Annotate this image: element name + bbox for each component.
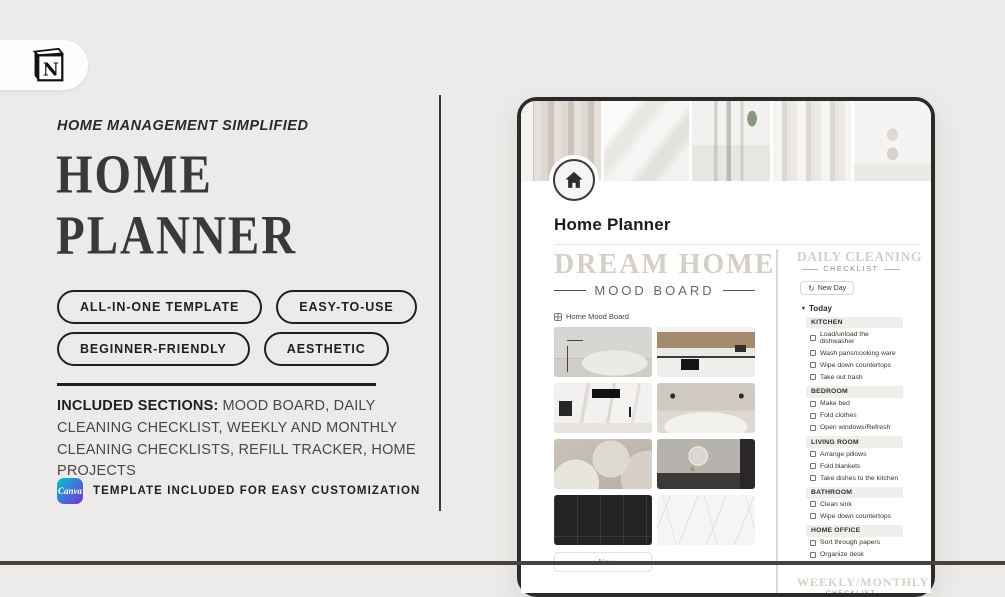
home-icon [563,169,585,191]
checkbox-empty-icon[interactable] [810,335,816,341]
checklist-section-home-office: HOME OFFICE [806,525,903,537]
checkbox-empty-icon[interactable] [810,513,816,519]
mood-board-heading: DREAM HOME [554,250,755,280]
checklist-item[interactable]: Take dishes to the kitchen [806,472,903,484]
checklist-item-label: Clean sink [820,501,852,508]
checklist-item[interactable]: Fold clothes [806,410,903,422]
notion-mockup-frame: Home Planner DREAM HOME MOOD BOARD Home … [517,97,935,597]
horizontal-divider [57,383,376,386]
checkbox-empty-icon[interactable] [810,552,816,558]
notion-page-title: Home Planner [554,215,671,235]
checklist-item-label: Fold clothes [820,412,857,419]
page-title-line2: PLANNER [56,205,297,266]
cover-photo-white-column [773,101,852,181]
checkbox-empty-icon[interactable] [810,362,816,368]
checklist-item-label: Wash pans/cooking ware [820,350,896,357]
notion-page-icon[interactable] [553,159,595,201]
checklist-item-label: Wipe down countertops [820,362,891,369]
canva-note: TEMPLATE INCLUDED FOR EASY CUSTOMIZATION [93,485,420,497]
canva-row: Canva TEMPLATE INCLUDED FOR EASY CUSTOMI… [57,478,420,504]
checklist-item-label: Load/unload the dishwasher [820,331,903,345]
weekly-checklist-subheading: CHECKLIST [797,590,905,593]
today-group-label: Today [809,304,832,313]
refresh-icon: ↻ [808,285,815,292]
mood-board-column: DREAM HOME MOOD BOARD Home Mood Board + … [554,250,755,572]
checklist-item[interactable]: Wipe down countertops [806,510,903,522]
mood-board-image-white-bedroom[interactable] [657,383,755,433]
checkbox-empty-icon[interactable] [810,540,816,546]
column-divider [776,249,778,593]
eyebrow-text: HOME MANAGEMENT SIMPLIFIED [57,118,308,134]
badge-beginner-friendly: BEGINNER-FRIENDLY [57,332,250,366]
mood-board-subheading: MOOD BOARD [554,283,755,298]
checklist-item-label: Open windows/Refresh [820,424,890,431]
checkbox-empty-icon[interactable] [810,451,816,457]
checklist-item[interactable]: Take out trash [806,371,903,383]
mood-board-image-black-wall-paneling[interactable] [554,495,652,545]
daily-checklist-column: DAILY CLEANING CHECKLIST ↻ New Day ▾ Tod… [797,249,905,593]
checklist-item-label: Fold blankets [820,463,860,470]
checklist-item[interactable]: Arrange pillows [806,448,903,460]
canva-logo-icon: Canva [57,478,83,504]
daily-checklist-heading: DAILY CLEANING [797,249,905,265]
checkbox-empty-icon[interactable] [810,350,816,356]
checklist-section-kitchen: KITCHEN [806,317,903,329]
checklist-section-living-room: LIVING ROOM [806,436,903,448]
checklist-item[interactable]: Load/unload the dishwasher [806,328,903,347]
checkbox-empty-icon[interactable] [810,425,816,431]
weekly-checklist-heading: WEEKLY/MONTHLY [797,575,905,590]
mood-board-image-kitchen-marble-counter[interactable] [554,383,652,433]
checklist-item-label: Arrange pillows [820,451,866,458]
checklist-item[interactable]: Sort through papers [806,537,903,549]
new-day-button[interactable]: ↻ New Day [800,281,854,295]
included-sections-label: INCLUDED SECTIONS: [57,398,219,414]
notion-tab: N [0,40,88,90]
checklist-item-label: Organize desk [820,551,864,558]
checklist-item[interactable]: Fold blankets [806,460,903,472]
mood-board-image-bathroom-round-mirror[interactable] [657,439,755,489]
weekly-monthly-block: WEEKLY/MONTHLY CHECKLIST [797,575,905,593]
checkbox-empty-icon[interactable] [810,401,816,407]
checklist-item[interactable]: Make bed [806,398,903,410]
checklist-section-bathroom: BATHROOM [806,487,903,499]
checklist-item-label: Take dishes to the kitchen [820,475,898,482]
badge-aesthetic: AESTHETIC [264,332,389,366]
checkbox-empty-icon[interactable] [810,374,816,380]
new-day-button-label: New Day [818,285,846,292]
promo-canvas: { "page": { "background_color": "#edebe9… [0,0,1005,565]
mood-board-image-white-marble-texture[interactable] [657,495,755,545]
gallery-view-label-text: Home Mood Board [566,312,629,321]
checklist-item[interactable]: Wipe down countertops [806,359,903,371]
checklist-item-label: Wipe down countertops [820,513,891,520]
checklist-item-label: Make bed [820,400,850,407]
checklist-item-label: Sort through papers [820,539,880,546]
bottom-edge-bar [0,561,1005,565]
checklist-item-label: Take out trash [820,374,863,381]
vertical-divider [439,95,441,511]
cover-photo-glass-vases-tulips [692,101,770,181]
daily-checklist-subheading: CHECKLIST [797,266,905,273]
checklist-section-bedroom: BEDROOM [806,386,903,398]
checklist-item[interactable]: Clean sink [806,498,903,510]
checklist-item[interactable]: Organize desk [806,549,903,561]
included-sections-paragraph: INCLUDED SECTIONS:MOOD BOARD, DAILY CLEA… [57,396,432,483]
mood-board-image-living-room-sofa[interactable] [554,327,652,377]
cover-photo-hourglass [854,101,931,181]
badge-easy-to-use: EASY-TO-USE [276,290,416,324]
page-title: HOME PLANNER [56,144,297,267]
svg-text:N: N [43,60,59,80]
checklist-item[interactable]: Open windows/Refresh [806,422,903,434]
checkbox-empty-icon[interactable] [810,413,816,419]
mood-board-grid [554,327,755,545]
title-divider [554,244,919,245]
gallery-grid-icon [554,313,562,321]
gallery-view-label[interactable]: Home Mood Board [554,312,755,321]
notion-icon: N [29,47,66,84]
checkbox-empty-icon[interactable] [810,463,816,469]
badge-row-1: ALL-IN-ONE TEMPLATE EASY-TO-USE [57,290,417,324]
checkbox-empty-icon[interactable] [810,501,816,507]
notion-page: Home Planner DREAM HOME MOOD BOARD Home … [521,101,931,593]
page-title-line1: HOME [56,144,297,205]
checklist-sections: KITCHENLoad/unload the dishwasherWash pa… [806,317,903,561]
checkbox-empty-icon[interactable] [810,475,816,481]
badge-all-in-one: ALL-IN-ONE TEMPLATE [57,290,262,324]
triangle-down-icon: ▾ [802,305,805,312]
checklist-item[interactable]: Wash pans/cooking ware [806,347,903,359]
today-group-toggle[interactable]: ▾ Today [802,304,905,313]
mood-board-image-abstract-sculpture[interactable] [554,439,652,489]
badge-row-2: BEGINNER-FRIENDLY AESTHETIC [57,332,389,366]
mood-board-image-kitchen-wood-cabinets[interactable] [657,327,755,377]
cover-photo-white-bedding [604,101,690,181]
